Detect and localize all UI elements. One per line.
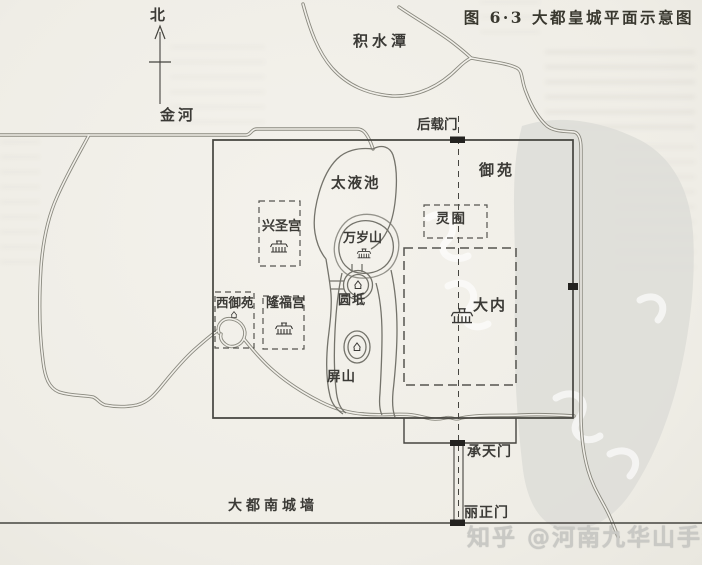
watermark-credit: 知乎 @河南九华山手绘 <box>467 526 702 551</box>
longfugong-label: 隆福宫 <box>266 297 305 311</box>
jishuitan-label: 积水潭 <box>353 33 410 50</box>
bridge-yuandi-west <box>330 281 344 289</box>
yuandi-hut-icon <box>355 281 362 289</box>
xingshenggong-label: 兴圣宫 <box>262 220 301 234</box>
south-wall-label: 大都南城墙 <box>228 499 318 514</box>
chengtianmen-label: 承天门 <box>467 445 512 460</box>
lizhengmen-label: 丽正门 <box>464 506 509 521</box>
danei-label: 大内 <box>473 297 507 314</box>
scanned-map-page: 图 6·3 大都皇城平面示意图 北 积水潭 金河 后载门 御苑 灵囿 太液池 兴… <box>0 0 702 565</box>
map-linework <box>0 0 702 565</box>
xingshenggong-hall-icon <box>271 241 288 252</box>
danei-box <box>404 248 516 385</box>
east-wall-gate-mark <box>568 283 578 290</box>
figure-title: 图 6·3 大都皇城平面示意图 <box>464 9 694 26</box>
chengtianmen-gate-mark <box>450 440 465 446</box>
lingyou-label: 灵囿 <box>436 212 467 227</box>
longfugong-hall-icon <box>276 323 293 334</box>
chengtianmen-forecourt <box>404 418 516 443</box>
xiyuyuan-hut-icon <box>231 312 237 318</box>
xiyuyuan-label: 西御苑 <box>216 296 254 310</box>
jinhe-label: 金河 <box>160 107 196 124</box>
yuyuan-label: 御苑 <box>479 162 515 179</box>
lizhengmen-gate-mark <box>450 520 465 527</box>
houzaimen-gate-mark <box>450 137 465 144</box>
wansuishan-label: 万岁山 <box>343 232 382 246</box>
pingshan-label: 屏山 <box>327 370 356 385</box>
watermark-blob <box>428 120 694 530</box>
yuandi-label: 圆坻 <box>338 294 366 308</box>
pingshan-islet-hut-icon <box>354 343 361 351</box>
north-arrow <box>149 26 171 104</box>
wansuishan-hall-icon <box>357 249 371 258</box>
compass-north-label: 北 <box>150 7 165 24</box>
taiyechi-label: 太液池 <box>331 176 381 192</box>
houzaimen-label: 后载门 <box>417 118 458 133</box>
